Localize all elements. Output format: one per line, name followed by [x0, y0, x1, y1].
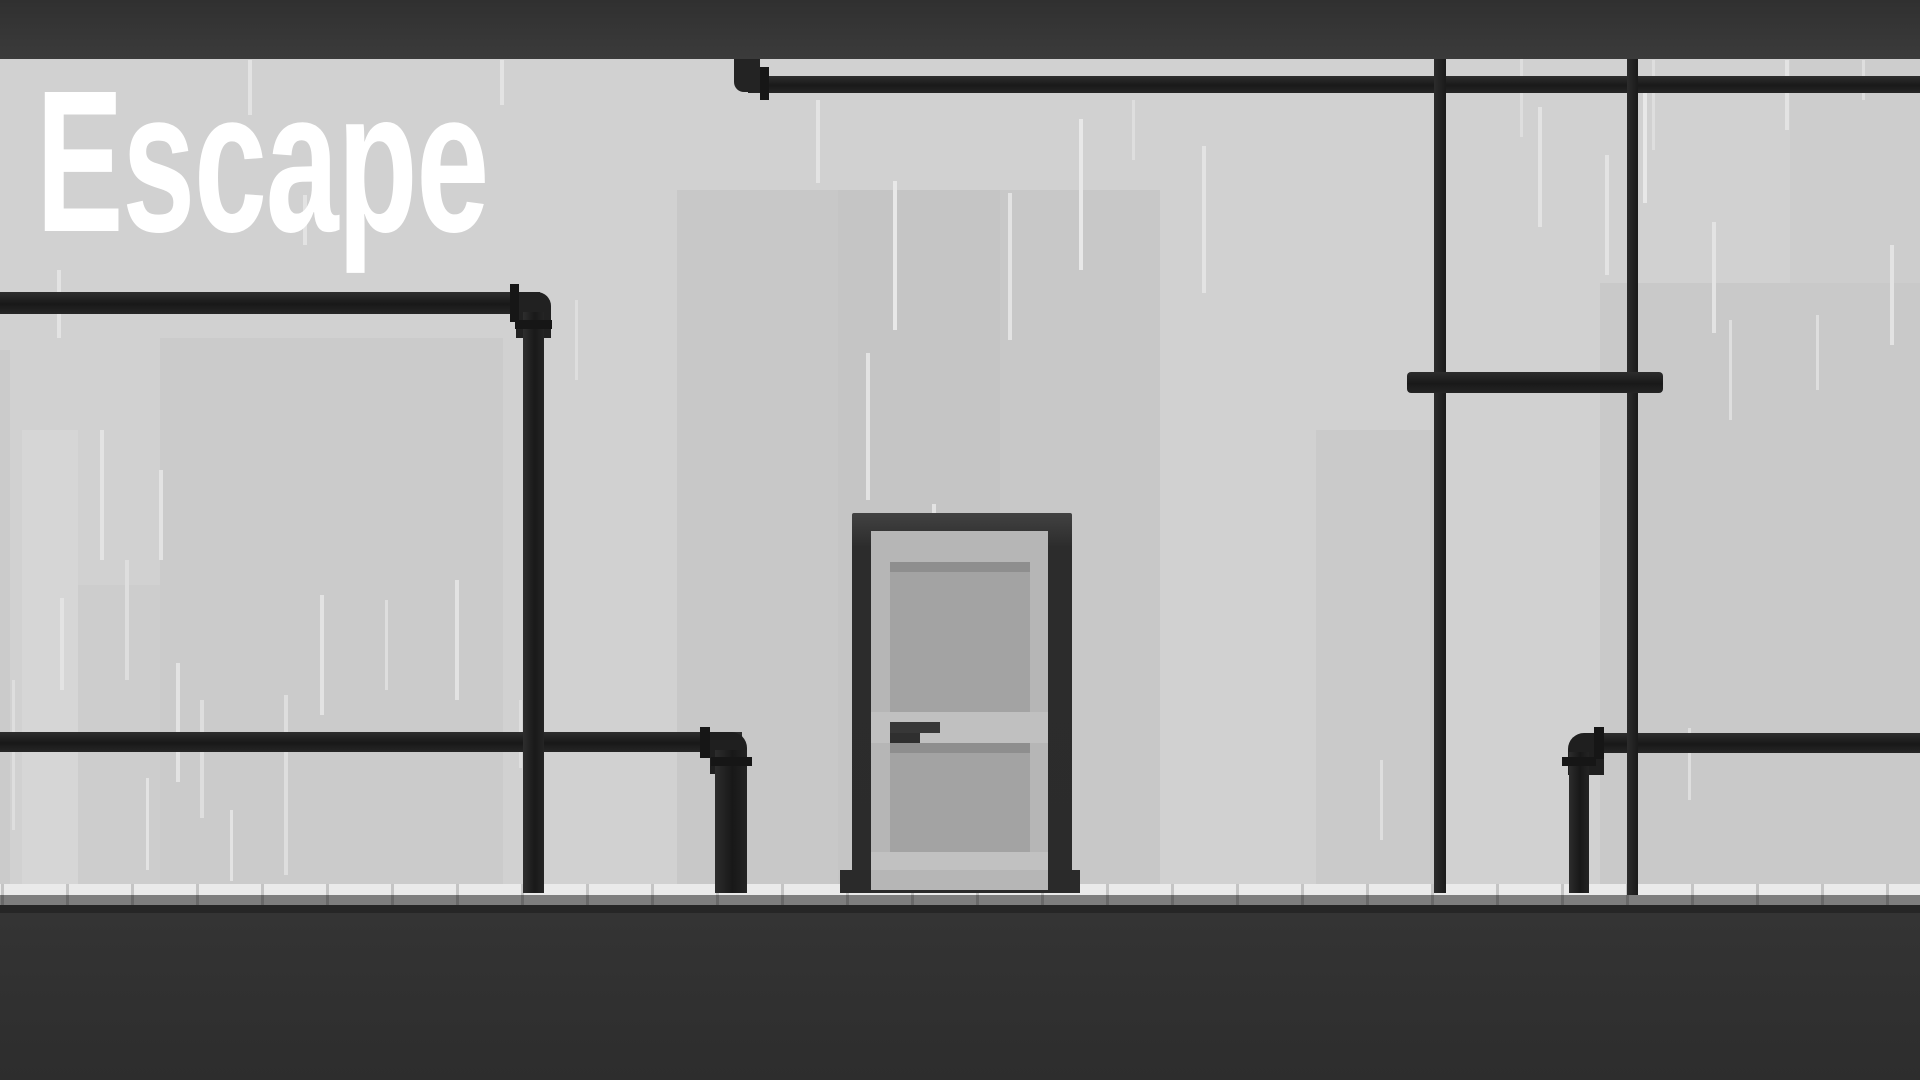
- floor-tile-separator: [1236, 884, 1239, 905]
- floor-tile-separator: [66, 884, 69, 905]
- door-panel: [890, 753, 1030, 852]
- game-title: Escape: [36, 60, 488, 262]
- floor-tile-separator: [1366, 884, 1369, 905]
- rain-streak: [575, 300, 578, 380]
- rain-streak: [1380, 760, 1383, 840]
- rain-streak: [1890, 245, 1894, 345]
- door-window-bevel: [890, 562, 1030, 572]
- rain-streak: [230, 810, 233, 881]
- rain-streak: [200, 700, 204, 818]
- floor-tile-separator: [1106, 884, 1109, 905]
- rain-streak: [893, 181, 897, 330]
- floor-tile-separator: [781, 884, 784, 905]
- door-foot-right: [1048, 870, 1080, 893]
- floor-tile-separator: [261, 884, 264, 905]
- door-handle-base[interactable]: [890, 733, 920, 743]
- bg-building-left: [160, 338, 503, 884]
- door-kick-strip: [871, 852, 1048, 870]
- rain-streak: [176, 663, 180, 782]
- bg-band-left-edge: [0, 350, 10, 884]
- rain-streak: [1132, 100, 1135, 160]
- floor-dark: [0, 913, 1920, 1080]
- pipe-left-flange-horizontal: [510, 284, 519, 322]
- rain-streak: [500, 60, 504, 105]
- rain-streak: [1520, 57, 1523, 137]
- bg-band-left-light: [22, 430, 78, 884]
- floor-tile-separator: [196, 884, 199, 905]
- floor-tile-separator: [1301, 884, 1304, 905]
- rain-streak: [1729, 320, 1732, 420]
- floor-shadow-row: [0, 895, 1920, 905]
- rain-streak: [100, 430, 104, 560]
- rain-streak: [1785, 60, 1789, 130]
- rain-streak: [1538, 107, 1542, 227]
- rain-streak: [125, 560, 129, 680]
- door-panel-bevel: [890, 743, 1030, 753]
- floor-tile-separator: [1691, 884, 1694, 905]
- pipe-left-vertical-flange: [515, 320, 552, 329]
- rain-streak: [12, 680, 15, 830]
- pipe-bottom-left-flange-vertical: [711, 757, 752, 766]
- rain-streak: [60, 598, 64, 690]
- pipe-top-right-horizontal: [748, 76, 1920, 93]
- pipe-bottom-left-vertical: [715, 750, 747, 893]
- floor-tile-separator: [651, 884, 654, 905]
- floor-tile-separator: [1171, 884, 1174, 905]
- rain-streak: [1652, 60, 1655, 150]
- pipe-right-vertical-1: [1434, 59, 1446, 893]
- game-viewport: Escape: [0, 0, 1920, 1080]
- rain-streak: [1605, 155, 1609, 275]
- bg-building-mid-right: [1316, 430, 1440, 884]
- floor-tile-separator: [131, 884, 134, 905]
- pipe-bottom-right-flange-vertical: [1562, 757, 1596, 766]
- rain-streak: [159, 470, 163, 560]
- rain-streak: [385, 600, 388, 690]
- pipe-left-horizontal: [0, 292, 540, 314]
- floor-tile-separator: [1561, 884, 1564, 905]
- rain-streak: [816, 100, 820, 183]
- pipe-bottom-left-flange-horizontal: [700, 727, 710, 758]
- rain-streak: [1816, 315, 1819, 390]
- rain-streak: [455, 580, 459, 700]
- floor-edge-dark: [0, 905, 1920, 913]
- floor-tile-separator: [586, 884, 589, 905]
- floor-tile-separator: [1756, 884, 1759, 905]
- rain-streak: [1643, 87, 1647, 203]
- pipe-right-connector: [1407, 372, 1663, 393]
- pipe-left-vertical: [523, 312, 544, 893]
- rain-streak: [284, 695, 288, 875]
- pipe-top-right-elbow: [734, 59, 760, 92]
- pipe-bottom-right-flange-horizontal: [1594, 727, 1604, 759]
- door-foot-left: [840, 870, 871, 893]
- pipe-bottom-left-horizontal: [0, 732, 742, 752]
- rain-streak: [320, 595, 324, 715]
- pipe-bottom-right-vertical: [1569, 752, 1589, 893]
- door-handle[interactable]: [890, 722, 940, 733]
- floor-tile-separator: [1496, 884, 1499, 905]
- pipe-top-right-flange: [760, 67, 769, 100]
- rain-streak: [866, 353, 870, 500]
- rain-streak: [146, 778, 149, 870]
- rain-streak: [1079, 119, 1083, 270]
- floor-tile-separator: [456, 884, 459, 905]
- rain-streak: [1712, 222, 1716, 333]
- floor-tile-separator: [1821, 884, 1824, 905]
- floor-tile-separator: [391, 884, 394, 905]
- door-window: [890, 572, 1030, 712]
- rain-streak: [1202, 146, 1206, 293]
- floor-tile-separator: [1, 884, 4, 905]
- floor-tile-separator: [326, 884, 329, 905]
- floor-tile-separator: [1886, 884, 1889, 905]
- rain-streak: [1008, 193, 1012, 340]
- pipe-right-vertical-2: [1627, 59, 1638, 895]
